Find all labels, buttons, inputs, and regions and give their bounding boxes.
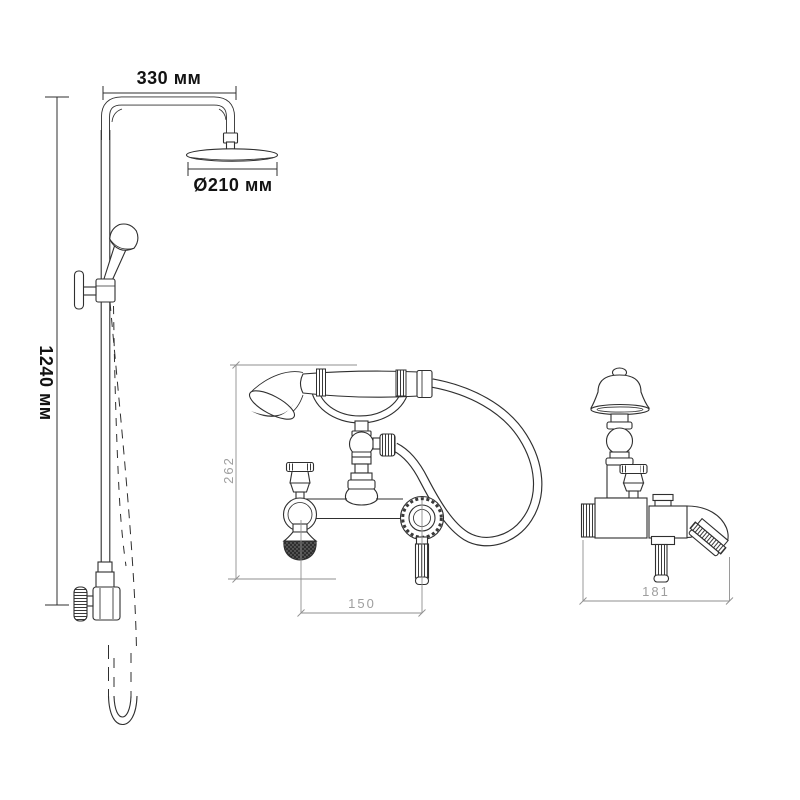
dim-label-mixer-height: 262 [221, 456, 236, 484]
dim-label-head-diameter: Ø210 мм [193, 175, 272, 195]
dim-head-diameter: Ø210 мм [188, 162, 277, 195]
slider-knob [75, 271, 84, 309]
diverter-knob-stem [373, 438, 380, 449]
cross-handle-front [287, 463, 314, 500]
drawing-canvas: 330 мм Ø210 мм 1240 мм [0, 0, 800, 800]
dim-column-height: 1240 мм [36, 97, 69, 605]
spout-front [284, 498, 317, 560]
handle-ring-band-left [317, 369, 326, 396]
valve-wheel [74, 587, 87, 621]
spout-side [687, 506, 730, 558]
dim-label-column-height: 1240 мм [36, 345, 56, 420]
diverter-knob [380, 434, 395, 456]
rain-shower-head [187, 133, 278, 161]
spout-aerator-face [284, 541, 316, 560]
mixer-body-side [582, 495, 688, 539]
valve-stem [87, 596, 93, 606]
hand-shower-slider [75, 220, 142, 309]
hose-coupling [417, 371, 432, 398]
bath-mixer-front-view: 262 150 [221, 362, 538, 617]
shower-arm [106, 101, 231, 141]
bath-mixer-side-view: 181 [580, 368, 734, 605]
shower-hose-dashed [109, 302, 138, 725]
wall-connector-knurled [582, 504, 596, 537]
bathroom-shower-technical-drawing: 330 мм Ø210 мм 1240 мм [0, 0, 800, 800]
wall-mount-valve [74, 562, 120, 621]
dim-label-arm-width: 330 мм [137, 68, 202, 88]
slider-knob-stem [83, 287, 96, 295]
dim-arm-width: 330 мм [103, 68, 236, 100]
shower-column-pole [101, 130, 110, 565]
shower-column-front-view: 330 мм Ø210 мм 1240 мм [36, 68, 278, 725]
hand-shower-head-side [591, 368, 649, 415]
dim-label-mixer-depth: 181 [642, 584, 670, 599]
hand-shower-bell-rim [246, 385, 299, 424]
lever-side [652, 537, 675, 583]
slider-bracket [96, 279, 115, 302]
diverter-valve-column [345, 421, 395, 505]
handle-ring-band-right [396, 370, 406, 396]
dim-label-spout-lever: 150 [348, 596, 376, 611]
